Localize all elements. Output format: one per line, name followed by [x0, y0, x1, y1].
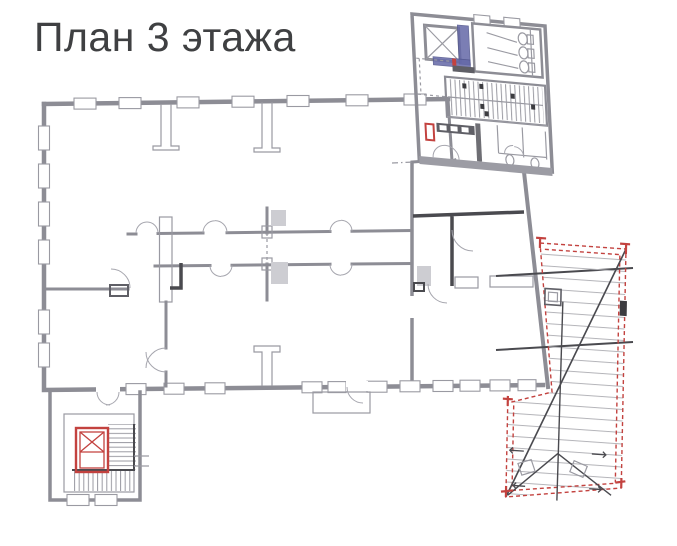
stairwell-annex — [50, 392, 149, 506]
door-gap-balcony — [346, 381, 368, 391]
pier-top-1 — [153, 104, 179, 150]
pier-top-2 — [254, 102, 280, 152]
blue-highlighted-walls — [431, 23, 470, 68]
annex-window — [67, 495, 89, 506]
dark-block — [620, 301, 627, 316]
bench — [455, 277, 478, 288]
door-gap-annex — [96, 385, 120, 395]
corridor-wall-upper — [128, 231, 412, 235]
divider-wall — [475, 123, 482, 161]
door-gap — [408, 296, 416, 318]
east-room — [408, 212, 533, 318]
red-marker — [452, 58, 456, 65]
annex-window — [95, 495, 117, 506]
wc-stalls — [497, 125, 547, 159]
bench — [490, 276, 533, 287]
stair-treads-side — [108, 424, 136, 470]
wall-shadows — [271, 210, 431, 286]
exterior-wall-left-bottom — [44, 104, 543, 390]
wc-room — [472, 23, 542, 77]
floor-plan-drawing — [0, 0, 677, 546]
red-radiator — [425, 124, 434, 141]
wing-corridor — [417, 118, 552, 176]
crossed-shaft — [425, 25, 461, 62]
door-arcs-partition — [146, 348, 166, 372]
pier-bottom — [254, 346, 280, 386]
floor-plan-page: План 3 этажа — [0, 0, 677, 546]
dark-wall-piece — [452, 65, 474, 73]
main-staircase — [445, 77, 547, 126]
upper-wing — [412, 9, 553, 176]
elevator-shaft-highlighted — [76, 428, 108, 472]
main-building — [39, 94, 549, 413]
